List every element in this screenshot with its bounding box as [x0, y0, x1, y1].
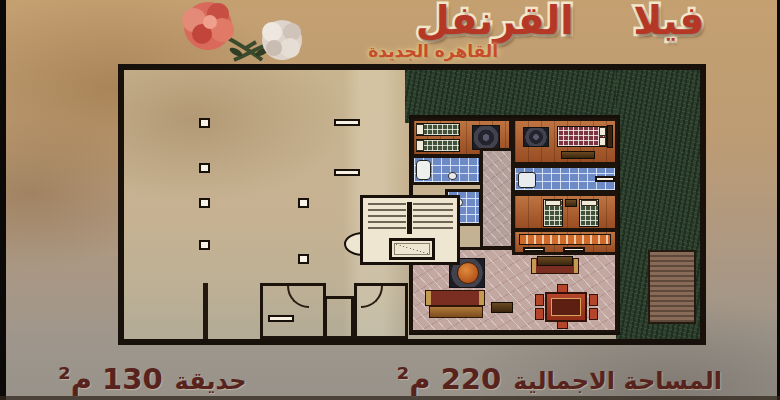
window-slot	[268, 315, 294, 322]
garden-deck	[648, 250, 696, 324]
kitchen-window	[523, 247, 545, 252]
poster-bottom-edge	[0, 396, 780, 400]
kitchen-window	[563, 247, 585, 252]
bathtub	[416, 160, 431, 180]
column-marker	[199, 163, 210, 173]
dining-table	[545, 292, 587, 322]
stair-divider	[407, 202, 412, 234]
poster-background: فيلا القرنفل القاهره الجديدة	[0, 0, 780, 400]
nightstand	[565, 199, 577, 207]
photo-left-edge	[0, 0, 6, 400]
stair-flight	[368, 203, 406, 233]
bedroom-top-right	[512, 118, 618, 165]
stair-landing	[389, 238, 435, 260]
bedroom-bottom-right	[512, 193, 618, 231]
side-table	[491, 302, 513, 313]
bathroom-right	[512, 165, 618, 193]
stair-flight	[413, 203, 453, 233]
carnation-flowers-icon	[150, 0, 340, 64]
pillow	[599, 127, 606, 136]
dining-chair	[535, 308, 544, 320]
corridor	[480, 148, 514, 249]
round-table	[457, 262, 479, 284]
column-marker	[199, 198, 210, 208]
dresser	[561, 151, 595, 159]
bedroom-rug	[523, 127, 549, 147]
dining-chair	[589, 308, 598, 320]
bedroom-rug	[472, 125, 500, 150]
column-marker	[298, 254, 309, 264]
total-area-label: المساحة الاجمالية	[513, 367, 722, 395]
total-area-group: المساحة الاجمالية 220 م²	[397, 362, 722, 396]
sink	[448, 172, 457, 180]
pillow	[581, 200, 597, 206]
column-marker	[298, 198, 309, 208]
poster-subtitle: القاهره الجديدة	[368, 41, 498, 61]
wall-stub	[203, 283, 208, 339]
column-marker	[199, 118, 210, 128]
window-slot	[334, 169, 360, 176]
dining-chair	[535, 294, 544, 306]
column-marker	[199, 240, 210, 250]
pillow	[416, 140, 424, 151]
garden-area-value: 130 م²	[58, 362, 163, 396]
total-area-value: 220 م²	[397, 362, 502, 396]
console-table	[537, 256, 573, 266]
garden-area-label: حديقة	[175, 367, 247, 395]
entry-room-left	[260, 283, 326, 339]
area-summary: المساحة الاجمالية 220 م² حديقة 130 م²	[58, 360, 722, 398]
kitchen-counter	[519, 234, 611, 245]
sofa-rug	[425, 290, 485, 306]
staircase	[360, 195, 460, 265]
dining-chair	[589, 294, 598, 306]
sofa	[429, 306, 483, 318]
bathroom-left	[411, 155, 482, 185]
bath-window	[595, 176, 615, 182]
pillow	[599, 137, 606, 146]
garden-area-group: حديقة 130 م²	[58, 362, 247, 396]
pillow	[545, 200, 561, 206]
entry-vestibule	[324, 296, 354, 339]
kitchen	[512, 229, 618, 255]
bathtub	[518, 172, 536, 188]
poster-title: فيلا القرنفل	[350, 0, 770, 43]
window-slot	[334, 119, 360, 126]
headboard	[607, 125, 613, 148]
pillow	[416, 124, 424, 135]
floor-plan	[118, 64, 706, 345]
entry-room-right	[354, 283, 408, 339]
door-swing-arc	[361, 286, 383, 308]
door-swing-arc	[287, 286, 309, 308]
